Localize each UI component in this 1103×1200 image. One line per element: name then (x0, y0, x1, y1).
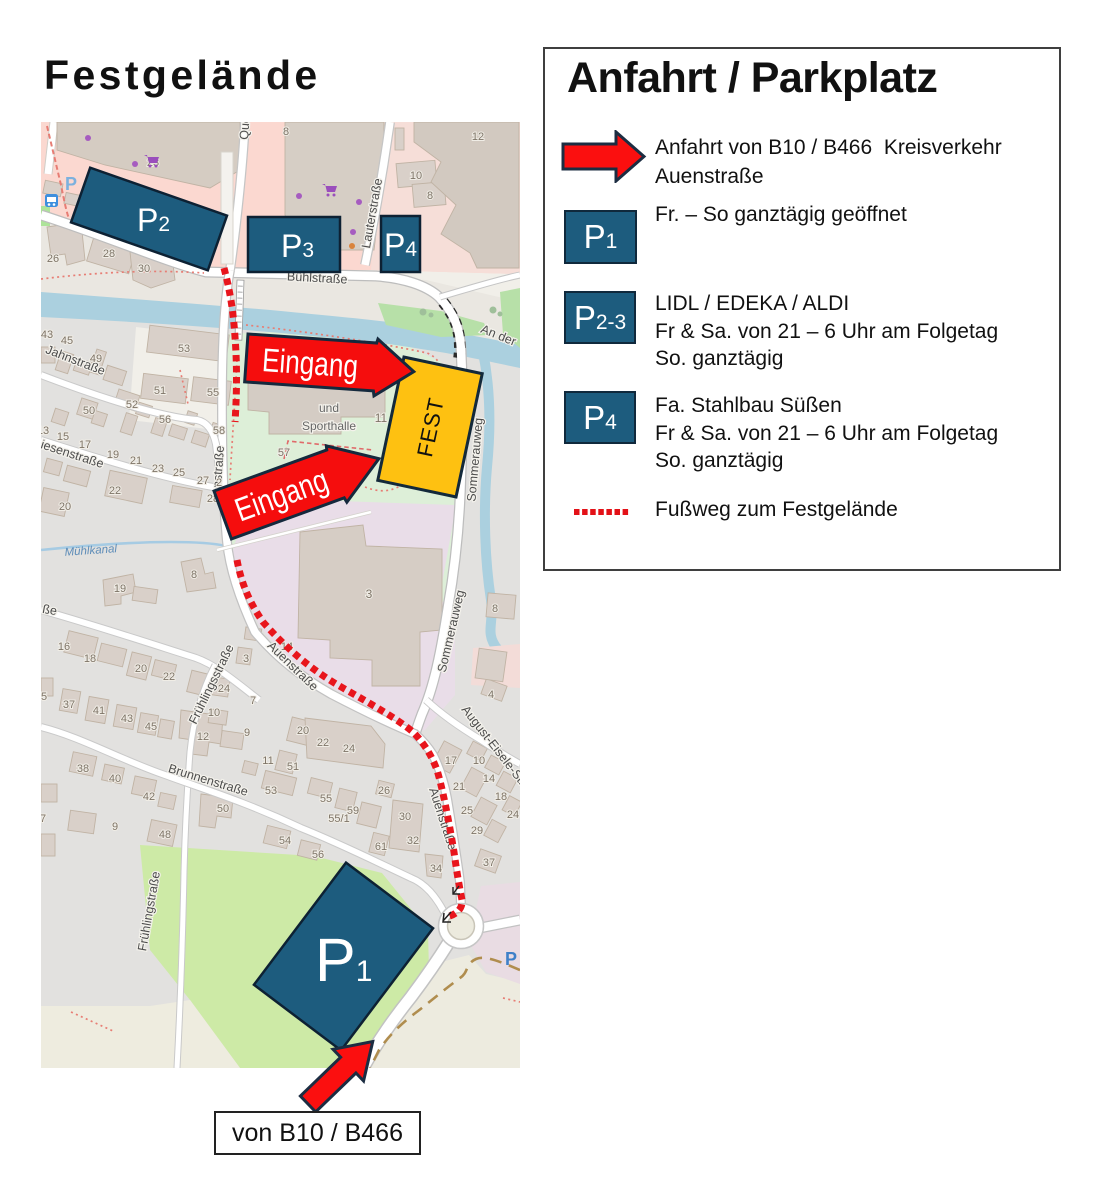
svg-text:20: 20 (59, 501, 71, 513)
svg-text:23: 23 (152, 463, 164, 475)
svg-text:21: 21 (130, 455, 142, 467)
svg-text:27: 27 (197, 475, 209, 487)
svg-text:57: 57 (278, 447, 290, 459)
svg-text:38: 38 (77, 763, 89, 775)
svg-text:53: 53 (265, 785, 277, 797)
svg-text:45: 45 (145, 721, 157, 733)
svg-text:42: 42 (143, 791, 155, 803)
svg-text:14: 14 (483, 773, 495, 785)
svg-text:30: 30 (138, 263, 150, 275)
svg-text:21: 21 (453, 781, 465, 793)
svg-text:7: 7 (41, 813, 46, 825)
svg-text:ße: ße (41, 602, 58, 618)
svg-text:17: 17 (445, 755, 457, 767)
svg-text:25: 25 (461, 805, 473, 817)
svg-text:22: 22 (109, 485, 121, 497)
svg-text:49: 49 (90, 353, 102, 365)
svg-text:Eingang: Eingang (261, 341, 359, 385)
svg-text:16: 16 (58, 641, 70, 653)
svg-text:12: 12 (197, 731, 209, 743)
svg-text:24: 24 (507, 809, 519, 821)
svg-text:11: 11 (262, 755, 273, 767)
svg-text:13: 13 (41, 425, 49, 437)
svg-text:45: 45 (61, 335, 73, 347)
svg-text:37: 37 (63, 699, 75, 711)
svg-text:52: 52 (126, 399, 138, 411)
svg-text:8: 8 (191, 569, 197, 581)
svg-text:3: 3 (243, 653, 249, 665)
svg-text:29: 29 (471, 825, 483, 837)
svg-text:24: 24 (218, 683, 230, 695)
svg-text:56: 56 (312, 849, 324, 861)
svg-text:11: 11 (375, 411, 388, 425)
svg-text:12: 12 (472, 131, 484, 143)
svg-text:P: P (65, 174, 77, 194)
svg-text:48: 48 (159, 829, 171, 841)
svg-text:40: 40 (109, 773, 121, 785)
svg-text:22: 22 (317, 737, 329, 749)
svg-text:28: 28 (103, 248, 115, 260)
svg-text:43: 43 (121, 713, 133, 725)
svg-text:43: 43 (41, 329, 53, 341)
svg-text:und: und (319, 401, 339, 415)
svg-text:51: 51 (287, 761, 299, 773)
svg-text:51: 51 (154, 385, 166, 397)
svg-text:10: 10 (410, 170, 422, 182)
svg-text:18: 18 (495, 791, 507, 803)
svg-text:Que: Que (237, 122, 253, 140)
svg-text:26: 26 (378, 785, 390, 797)
svg-text:54: 54 (279, 835, 291, 847)
svg-text:8: 8 (427, 190, 433, 202)
svg-text:3: 3 (366, 587, 373, 601)
svg-text:8: 8 (492, 603, 498, 615)
svg-text:24: 24 (343, 743, 355, 755)
svg-text:8: 8 (283, 126, 289, 138)
svg-text:17: 17 (79, 439, 91, 451)
svg-text:7: 7 (250, 695, 256, 707)
svg-text:20: 20 (297, 725, 309, 737)
svg-text:53: 53 (178, 343, 190, 355)
svg-text:41: 41 (93, 705, 105, 717)
svg-text:4: 4 (488, 689, 494, 701)
svg-text:30: 30 (399, 811, 411, 823)
svg-text:15: 15 (57, 431, 69, 443)
svg-text:26: 26 (47, 253, 59, 265)
svg-text:19: 19 (107, 449, 119, 461)
svg-text:55: 55 (207, 387, 219, 399)
svg-text:25: 25 (173, 467, 185, 479)
svg-text:55: 55 (320, 793, 332, 805)
svg-text:59: 59 (347, 805, 359, 817)
svg-text:50: 50 (83, 405, 95, 417)
svg-text:9: 9 (244, 727, 250, 739)
svg-text:20: 20 (135, 663, 147, 675)
svg-text:P: P (505, 949, 517, 969)
svg-text:37: 37 (483, 857, 495, 869)
svg-text:Sporthalle: Sporthalle (302, 419, 356, 433)
svg-text:61: 61 (375, 841, 387, 853)
svg-text:10: 10 (473, 755, 485, 767)
svg-text:34: 34 (430, 863, 442, 875)
svg-text:18: 18 (84, 653, 96, 665)
svg-text:32: 32 (407, 835, 419, 847)
svg-text:50: 50 (217, 803, 229, 815)
svg-text:10: 10 (208, 707, 220, 719)
svg-text:22: 22 (163, 671, 175, 683)
svg-text:19: 19 (114, 583, 126, 595)
svg-text:58: 58 (213, 425, 225, 437)
svg-text:35: 35 (41, 691, 47, 703)
svg-text:9: 9 (112, 821, 118, 833)
svg-text:56: 56 (159, 414, 171, 426)
